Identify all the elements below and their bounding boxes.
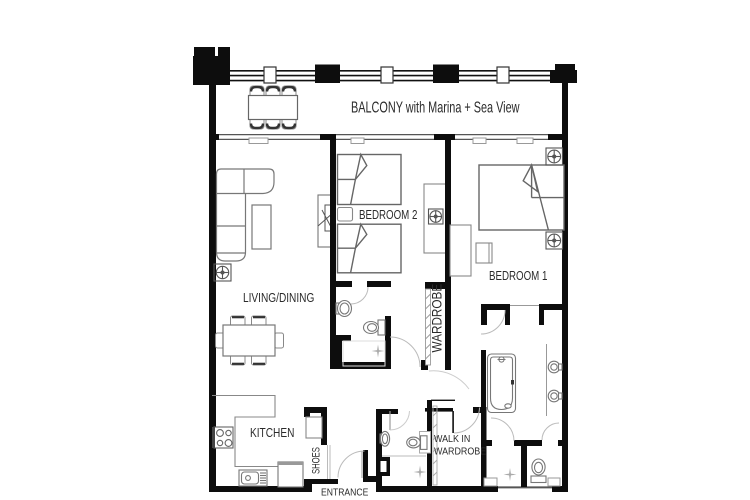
svg-text:BEDROOM 2: BEDROOM 2 xyxy=(359,209,417,222)
svg-text:BEDROOM 1: BEDROOM 1 xyxy=(489,270,547,283)
svg-text:WARDROBE: WARDROBE xyxy=(434,446,487,458)
svg-text:KITCHEN: KITCHEN xyxy=(250,427,294,440)
svg-text:SHOES: SHOES xyxy=(310,447,323,474)
svg-text:WALK IN: WALK IN xyxy=(434,433,470,445)
svg-text:LIVING/DINING: LIVING/DINING xyxy=(243,292,314,305)
svg-text:ENTRANCE: ENTRANCE xyxy=(321,487,368,499)
svg-text:WARDROBE: WARDROBE xyxy=(430,284,445,353)
svg-text:BALCONY with Marina + Sea View: BALCONY with Marina + Sea View xyxy=(351,98,520,116)
